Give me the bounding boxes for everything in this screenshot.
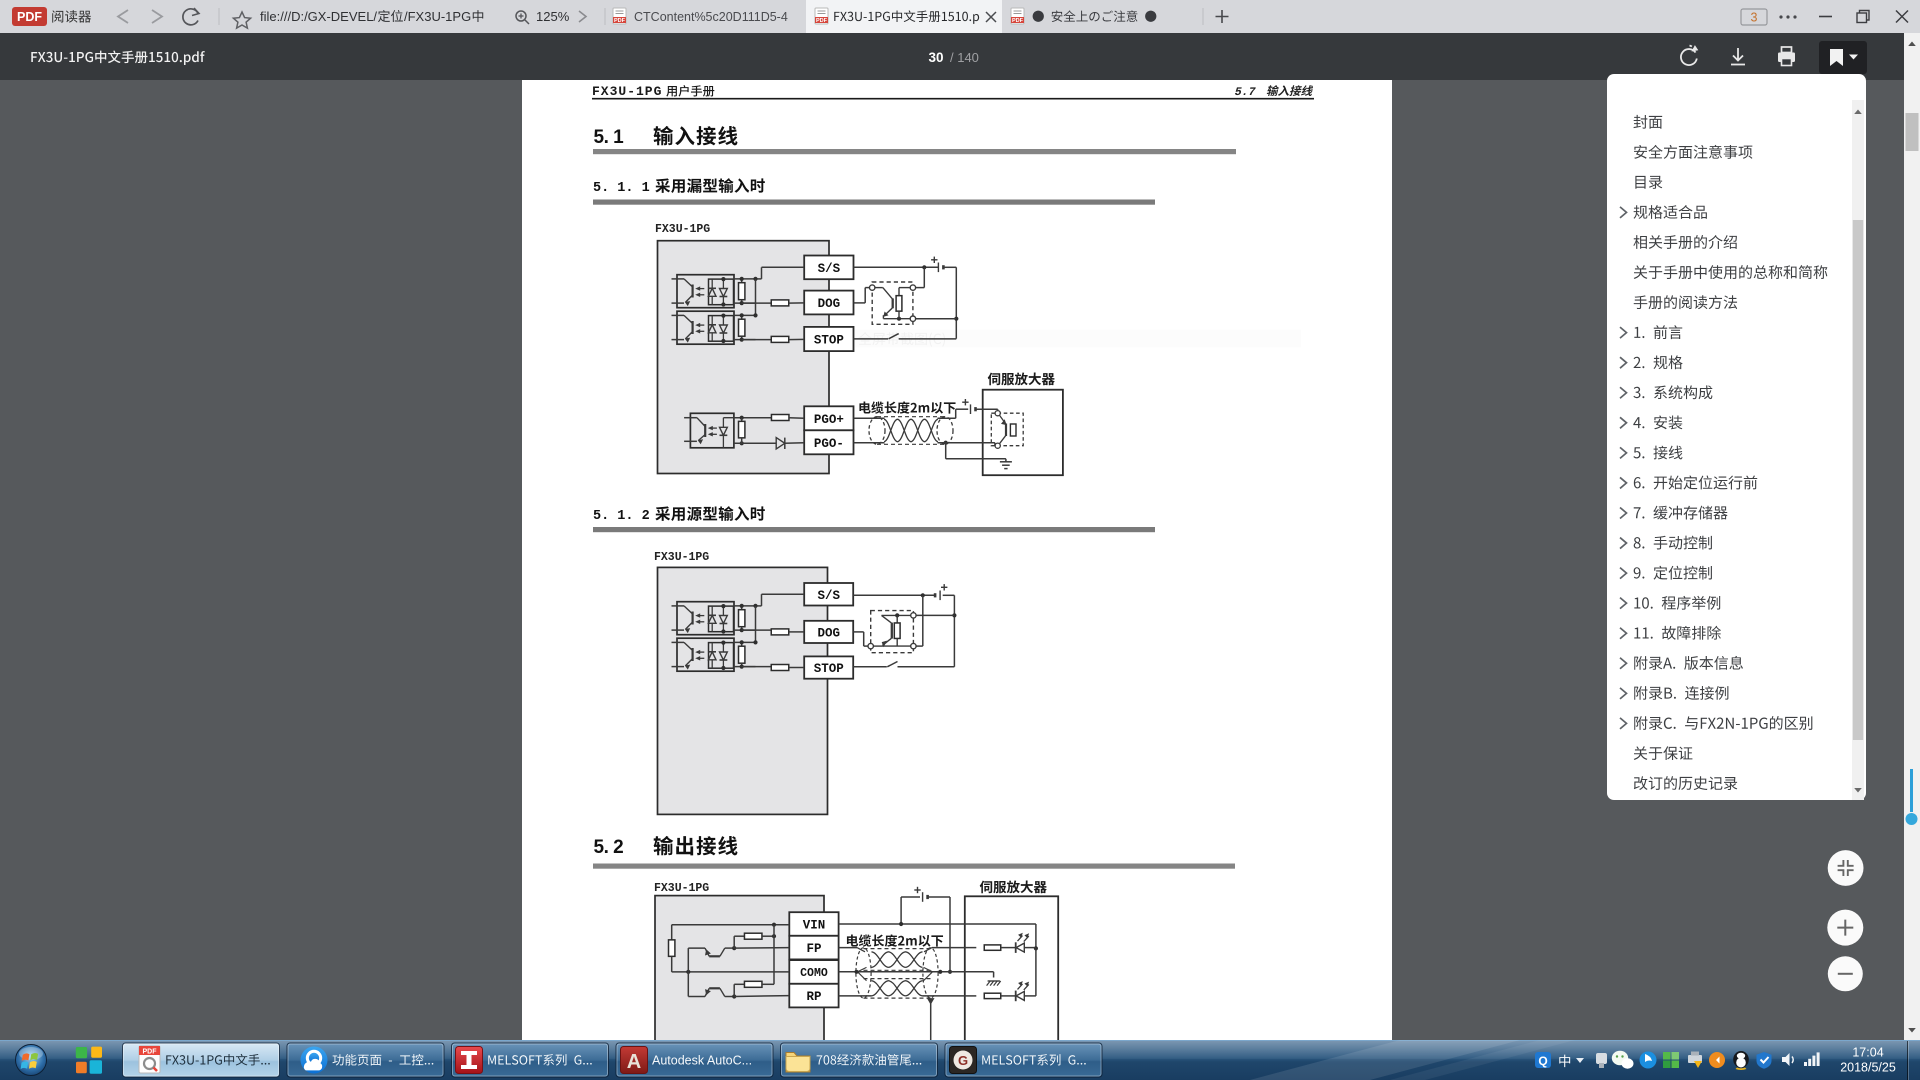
svg-text:RP: RP <box>806 990 821 1004</box>
svg-text:COMO: COMO <box>800 967 828 980</box>
svg-text:STOP: STOP <box>814 662 844 676</box>
svg-text:5. 1. 2: 5. 1. 2 <box>593 509 650 524</box>
svg-text:5.7: 5.7 <box>1233 85 1257 99</box>
svg-text:5. 1. 1: 5. 1. 1 <box>593 181 650 196</box>
svg-text:5. 1: 5. 1 <box>594 127 625 148</box>
svg-text:PGO+: PGO+ <box>814 413 844 427</box>
svg-text:S/S: S/S <box>817 589 840 603</box>
svg-text:17:04: 17:04 <box>1852 1046 1883 1060</box>
svg-text:FX3U-1PG: FX3U-1PG <box>654 882 709 895</box>
svg-text:FX3U-1PG: FX3U-1PG <box>592 84 662 99</box>
svg-text:A: A <box>627 1051 641 1073</box>
svg-text:CTContent%5c20D111D5-4: CTContent%5c20D111D5-4 <box>634 10 788 24</box>
svg-text:FX3U-1PG: FX3U-1PG <box>655 223 710 236</box>
svg-text:/FX3U-1PG: /FX3U-1PG <box>404 9 471 24</box>
svg-text:file:///D:/GX-DEVEL/: file:///D:/GX-DEVEL/ <box>260 9 377 24</box>
svg-text:FX3U-1PG: FX3U-1PG <box>654 551 709 564</box>
svg-text:PGO-: PGO- <box>814 437 844 451</box>
svg-text:FP: FP <box>806 942 821 956</box>
svg-text:PDF: PDF <box>17 10 42 24</box>
svg-text:PDF: PDF <box>143 1049 158 1056</box>
svg-text:G: G <box>958 1053 968 1068</box>
svg-text:Q: Q <box>1538 1054 1547 1068</box>
svg-text:30: 30 <box>928 50 943 65</box>
svg-text:5. 2: 5. 2 <box>594 837 624 858</box>
svg-text:PDF: PDF <box>614 18 626 24</box>
svg-text:PDF: PDF <box>816 18 828 24</box>
svg-text:Autodesk AutoC...: Autodesk AutoC... <box>652 1054 752 1068</box>
svg-text:DOG: DOG <box>817 626 840 640</box>
svg-text:/ 140: / 140 <box>950 50 979 65</box>
svg-text:S/S: S/S <box>818 262 841 276</box>
svg-text:STOP: STOP <box>814 334 844 348</box>
svg-text:125%: 125% <box>536 9 570 24</box>
svg-text:3: 3 <box>1751 11 1758 25</box>
svg-text:2018/5/25: 2018/5/25 <box>1840 1061 1896 1075</box>
svg-text:PDF: PDF <box>1012 18 1024 24</box>
svg-text:VIN: VIN <box>803 919 826 933</box>
svg-text:DOG: DOG <box>818 297 841 311</box>
